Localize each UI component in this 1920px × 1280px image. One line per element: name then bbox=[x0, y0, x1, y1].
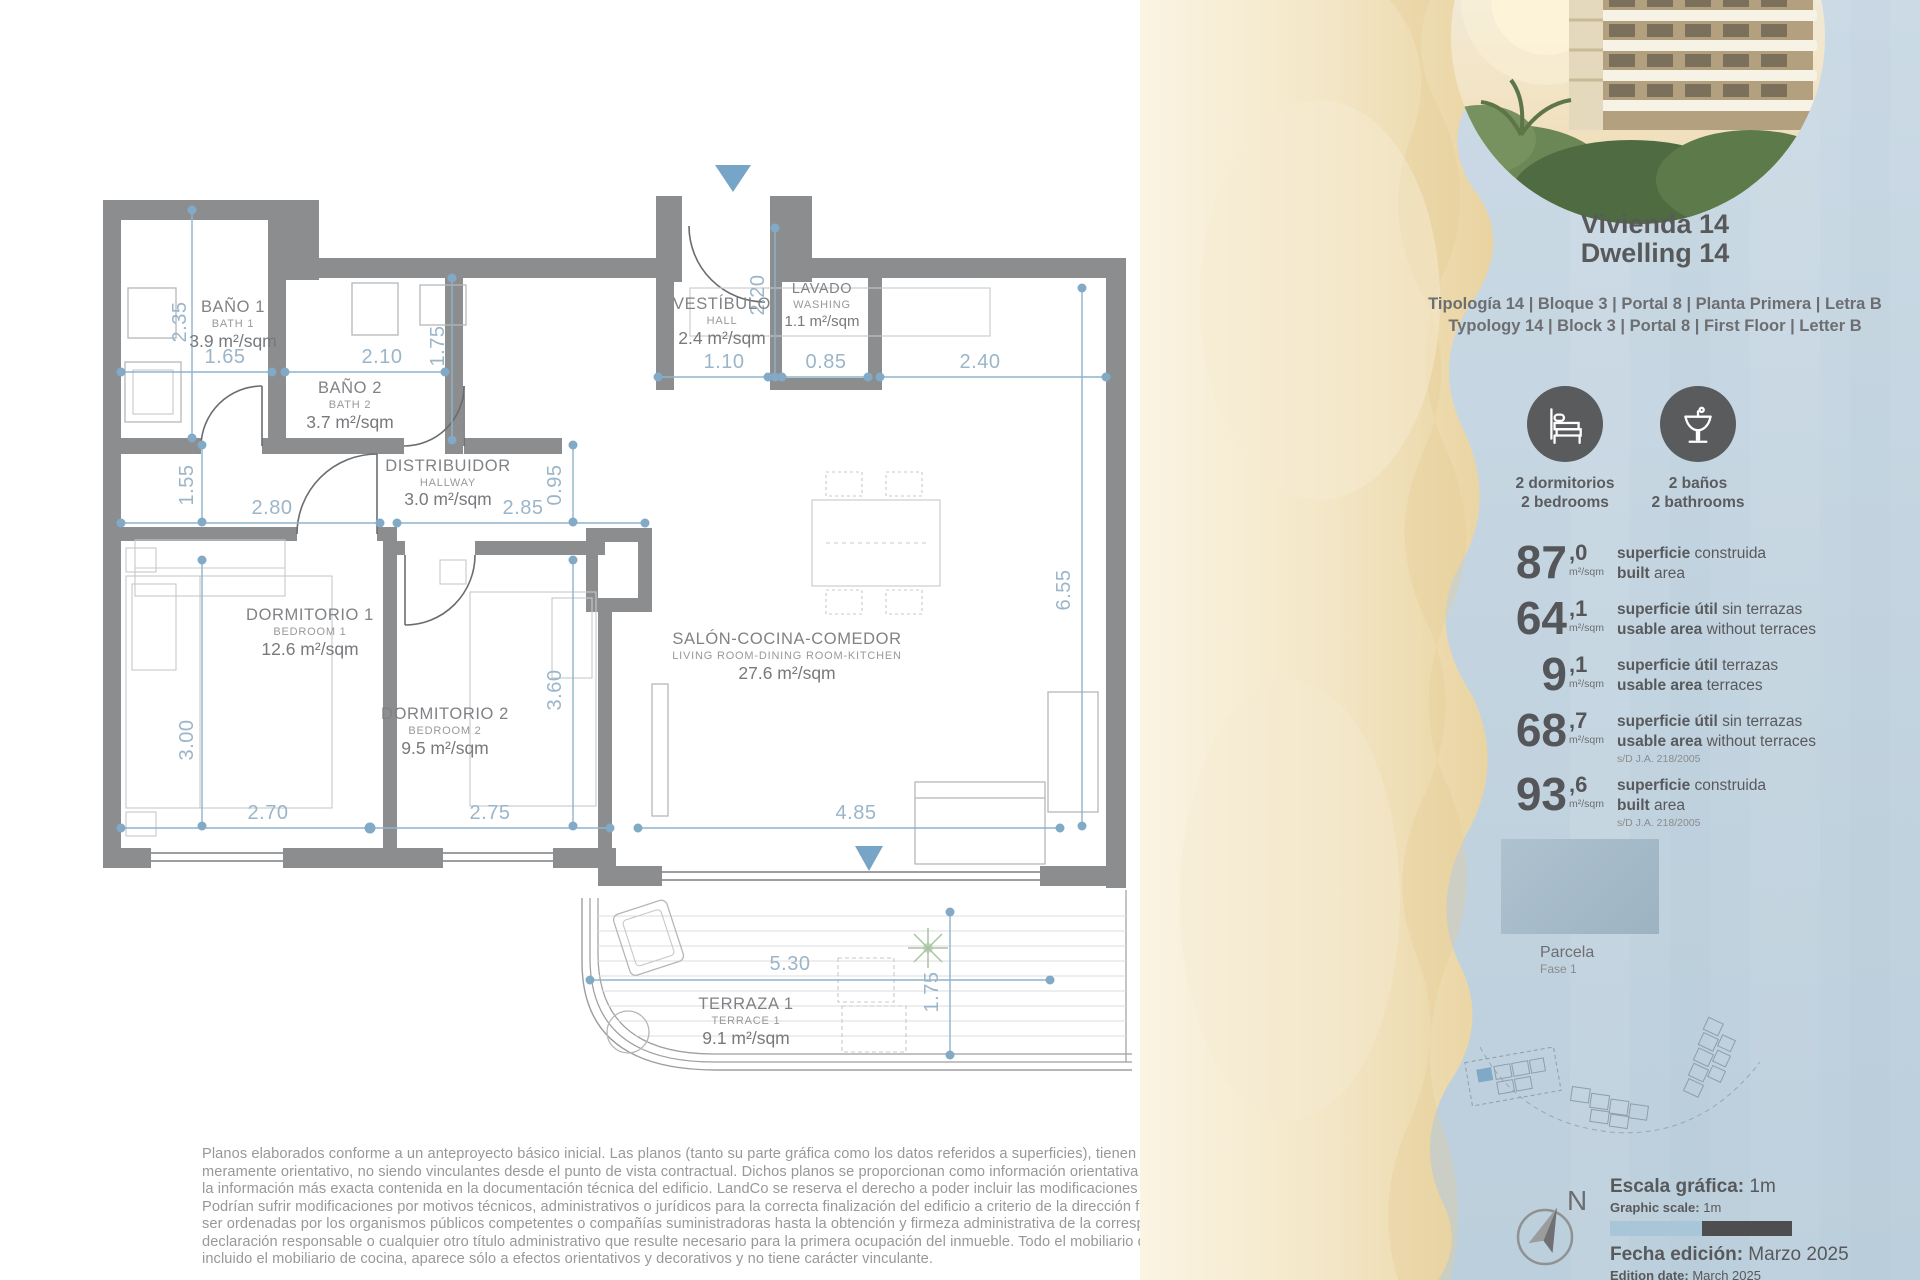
stat-value: 93 bbox=[1505, 774, 1567, 815]
dim-label: 3.00 bbox=[176, 720, 198, 761]
svg-text:9.1 m²/sqm: 9.1 m²/sqm bbox=[702, 1028, 790, 1048]
svg-text:9.5 m²/sqm: 9.5 m²/sqm bbox=[401, 738, 489, 758]
svg-text:LIVING ROOM-DINING ROOM-KITCHE: LIVING ROOM-DINING ROOM-KITCHEN bbox=[672, 650, 902, 662]
stat-value: 87 bbox=[1505, 542, 1567, 583]
svg-text:2.4 m²/sqm: 2.4 m²/sqm bbox=[678, 328, 766, 348]
svg-text:BEDROOM 1: BEDROOM 1 bbox=[273, 626, 346, 638]
room-label-bath1: BAÑO 1 BATH 1 3.9 m²/sqm bbox=[189, 296, 277, 351]
parcela-swatch bbox=[1501, 839, 1659, 934]
dim-label: 6.55 bbox=[1053, 570, 1075, 611]
room-label-bath2: BAÑO 2 BATH 2 3.7 m²/sqm bbox=[306, 377, 394, 432]
scale-label-es: Escala gráfica: bbox=[1610, 1176, 1744, 1197]
stat-value: 68 bbox=[1505, 710, 1567, 751]
dim-label: 2.85 bbox=[503, 497, 544, 519]
room-label-living: SALÓN-COCINA-COMEDOR LIVING ROOM-DINING … bbox=[672, 629, 902, 683]
edition-date-en: Edition date: bbox=[1610, 1268, 1689, 1280]
feature-bathrooms: 2 baños 2 bathrooms bbox=[1623, 386, 1773, 513]
dim-label: 1.55 bbox=[176, 465, 198, 506]
typology-es: Tipología 14 | Bloque 3 | Portal 8 | Pla… bbox=[1355, 294, 1920, 316]
svg-text:BATH 2: BATH 2 bbox=[329, 399, 372, 411]
terrace-arrow-icon bbox=[855, 846, 883, 871]
svg-text:BAÑO 2: BAÑO 2 bbox=[318, 377, 382, 397]
feature-bathrooms-en: 2 bathrooms bbox=[1623, 493, 1773, 512]
svg-text:BATH 1: BATH 1 bbox=[212, 318, 255, 330]
svg-text:BEDROOM 2: BEDROOM 2 bbox=[408, 725, 481, 737]
svg-text:3.7 m²/sqm: 3.7 m²/sqm bbox=[306, 412, 394, 432]
dwelling-title-en: Dwelling 14 bbox=[1395, 239, 1915, 268]
room-label-hallway: DISTRIBUIDOR HALLWAY 3.0 m²/sqm bbox=[385, 457, 510, 509]
typology-info: Tipología 14 | Bloque 3 | Portal 8 | Pla… bbox=[1355, 294, 1920, 338]
svg-text:LAVADO: LAVADO bbox=[792, 281, 852, 297]
stat-usable-area: 64,1m²/sqm superficie útil sin terrazas … bbox=[1505, 598, 1816, 640]
graphic-scale-bar bbox=[1610, 1221, 1792, 1236]
room-label-washing: LAVADO WASHING 1.1 m²/sqm bbox=[784, 281, 859, 330]
svg-text:1.1 m²/sqm: 1.1 m²/sqm bbox=[784, 313, 859, 330]
dwelling-title: Vivienda 14 Dwelling 14 bbox=[1395, 210, 1915, 268]
svg-text:3.0 m²/sqm: 3.0 m²/sqm bbox=[404, 489, 492, 509]
svg-text:DORMITORIO 2: DORMITORIO 2 bbox=[381, 705, 509, 723]
dim-label: 1.10 bbox=[704, 351, 745, 373]
scale-label-en: Graphic scale: bbox=[1610, 1200, 1700, 1215]
feature-bedrooms-en: 2 bedrooms bbox=[1490, 493, 1640, 512]
dim-label: 0.85 bbox=[806, 351, 847, 373]
svg-text:SALÓN-COCINA-COMEDOR: SALÓN-COCINA-COMEDOR bbox=[672, 629, 901, 648]
svg-text:TERRACE 1: TERRACE 1 bbox=[712, 1015, 781, 1027]
info-sidebar: Vivienda 14 Dwelling 14 Tipología 14 | B… bbox=[1140, 0, 1920, 1280]
dim-label: 1.75 bbox=[921, 972, 943, 1013]
entry-arrow-icon bbox=[715, 165, 751, 192]
room-label-bedroom1: DORMITORIO 1 BEDROOM 1 12.6 m²/sqm bbox=[246, 606, 374, 659]
svg-text:27.6 m²/sqm: 27.6 m²/sqm bbox=[738, 663, 835, 683]
stat-built-area: 87,0m²/sqm superficie construida built a… bbox=[1505, 542, 1766, 584]
dim-label: 2.80 bbox=[252, 497, 293, 519]
dim-label: 2.40 bbox=[960, 351, 1001, 373]
svg-text:12.6 m²/sqm: 12.6 m²/sqm bbox=[261, 639, 358, 659]
floor-plan-svg: 2.35 1.65 2.10 1.75 2.20 1.10 0.85 2.40 … bbox=[0, 0, 1160, 1130]
svg-text:WASHING: WASHING bbox=[793, 299, 851, 311]
svg-text:VESTÍBULO: VESTÍBULO bbox=[673, 294, 771, 313]
stat-value: 9 bbox=[1505, 654, 1567, 695]
dwelling-title-es: Vivienda 14 bbox=[1395, 210, 1915, 239]
svg-text:DISTRIBUIDOR: DISTRIBUIDOR bbox=[385, 457, 510, 475]
dim-label: 1.75 bbox=[427, 326, 449, 367]
dim-label: 2.35 bbox=[169, 302, 191, 343]
svg-text:HALL: HALL bbox=[707, 315, 738, 327]
room-label-hall: VESTÍBULO HALL 2.4 m²/sqm bbox=[673, 294, 771, 348]
bed-icon bbox=[1527, 386, 1603, 462]
compass-north-label: N bbox=[1567, 1185, 1587, 1217]
feature-bedrooms-es: 2 dormitorios bbox=[1490, 474, 1640, 493]
disclaimer-text: Planos elaborados conforme a un anteproy… bbox=[202, 1146, 1266, 1269]
dim-label: 2.10 bbox=[362, 346, 403, 368]
dim-label: 5.30 bbox=[770, 953, 811, 975]
room-label-bedroom2: DORMITORIO 2 BEDROOM 2 9.5 m²/sqm bbox=[381, 705, 509, 758]
typology-en: Typology 14 | Block 3 | Portal 8 | First… bbox=[1355, 316, 1920, 338]
room-labels: BAÑO 1 BATH 1 3.9 m²/sqm BAÑO 2 BATH 2 3… bbox=[189, 281, 902, 1048]
svg-text:HALLWAY: HALLWAY bbox=[420, 477, 476, 489]
dim-label: 2.75 bbox=[470, 802, 511, 824]
svg-text:3.9 m²/sqm: 3.9 m²/sqm bbox=[189, 331, 277, 351]
svg-text:TERRAZA 1: TERRAZA 1 bbox=[698, 995, 793, 1013]
stat-terrace-area: 9,1m²/sqm superficie útil terrazas usabl… bbox=[1505, 654, 1778, 696]
plant-icon bbox=[908, 928, 948, 968]
dim-label: 2.70 bbox=[248, 802, 289, 824]
feature-bathrooms-es: 2 baños bbox=[1623, 474, 1773, 493]
site-plan-map bbox=[1440, 1002, 1770, 1172]
stat-value: 64 bbox=[1505, 598, 1567, 639]
stat-built-area-decree: 93,6m²/sqm superficie construida built a… bbox=[1505, 774, 1766, 831]
svg-text:DORMITORIO 1: DORMITORIO 1 bbox=[246, 606, 374, 624]
svg-text:BAÑO 1: BAÑO 1 bbox=[201, 296, 265, 316]
stat-usable-area-decree: 68,7m²/sqm superficie útil sin terrazas … bbox=[1505, 710, 1816, 767]
dim-label: 4.85 bbox=[836, 802, 877, 824]
floor-plan-page: 2.35 1.65 2.10 1.75 2.20 1.10 0.85 2.40 … bbox=[0, 0, 1920, 1280]
scale-block: Escala gráfica: 1m Graphic scale: 1m Fec… bbox=[1610, 1176, 1870, 1280]
dim-label: 0.95 bbox=[544, 465, 566, 506]
highlighted-unit bbox=[1476, 1067, 1493, 1082]
feature-bedrooms: 2 dormitorios 2 bedrooms bbox=[1490, 386, 1640, 513]
room-label-terrace: TERRAZA 1 TERRACE 1 9.1 m²/sqm bbox=[698, 995, 793, 1048]
edition-date-es: Fecha edición: bbox=[1610, 1244, 1743, 1265]
dim-label: 3.60 bbox=[544, 670, 566, 711]
parcela-label: Parcela Fase 1 bbox=[1540, 944, 1594, 976]
building-illustration bbox=[1569, 0, 1817, 130]
washbasin-icon bbox=[1660, 386, 1736, 462]
